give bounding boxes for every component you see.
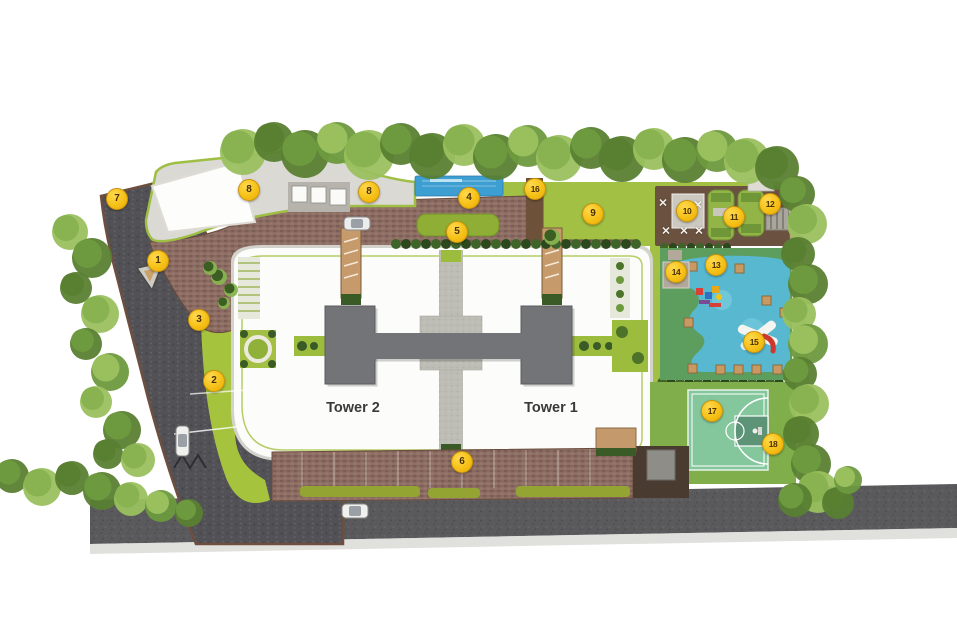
- marker-8[interactable]: 8: [238, 179, 260, 201]
- hedge-shrub: [431, 239, 441, 249]
- hedge-shrub: [631, 239, 641, 249]
- hedge-shrub: [521, 239, 531, 249]
- backboard: [758, 427, 762, 435]
- lawn-verge: [516, 486, 630, 497]
- utility-block: [633, 446, 689, 498]
- hedge-shrub: [401, 239, 411, 249]
- tree: [778, 483, 812, 517]
- tower-1-footprint: [521, 306, 572, 384]
- hedge-shrub: [601, 239, 611, 249]
- marker-3[interactable]: 3: [188, 309, 210, 331]
- hedge-shrub: [491, 239, 501, 249]
- tree: [93, 439, 123, 469]
- tower-1-label: Tower 1: [524, 400, 578, 416]
- hedge-shrub: [391, 239, 401, 249]
- marker-18[interactable]: 18: [762, 433, 784, 455]
- site-plan-canvas: ✕✕✕✕✕ Tower 2 Tower 1 123456788910111213…: [0, 0, 957, 625]
- tree: [114, 482, 148, 516]
- tower-2-label: Tower 2: [326, 400, 380, 416]
- hedge-shrub: [471, 239, 481, 249]
- x-ground-mark: ✕: [658, 197, 667, 210]
- marker-9[interactable]: 9: [582, 203, 604, 225]
- marker-17[interactable]: 17: [701, 400, 723, 422]
- hedge-shrub: [481, 239, 491, 249]
- marker-8[interactable]: 8: [358, 181, 380, 203]
- marker-2[interactable]: 2: [203, 370, 225, 392]
- car-on-driveway: [176, 426, 189, 456]
- planter-pockets-right: [610, 258, 630, 318]
- parking-stalls-left: [238, 257, 260, 319]
- tree: [81, 295, 119, 333]
- service-structure: [330, 189, 346, 205]
- planter-pocket-east: [612, 320, 648, 372]
- x-ground-mark: ✕: [661, 225, 670, 238]
- tree: [218, 297, 230, 309]
- site-plan-map: [0, 0, 957, 625]
- hedge-shrub: [621, 239, 631, 249]
- marker-14[interactable]: 14: [665, 261, 687, 283]
- lawn-verge: [428, 488, 480, 498]
- tree: [121, 443, 155, 477]
- marker-10[interactable]: 10: [676, 200, 698, 222]
- tree: [834, 466, 862, 494]
- hedge-shrub: [571, 239, 581, 249]
- car-on-road: [342, 504, 368, 518]
- tree: [175, 499, 203, 527]
- tree: [544, 229, 560, 245]
- marker-13[interactable]: 13: [705, 254, 727, 276]
- tree: [72, 238, 112, 278]
- service-structure: [311, 187, 326, 203]
- tower-2-footprint: [325, 306, 375, 384]
- tree: [70, 328, 102, 360]
- tree: [203, 261, 217, 275]
- basement-ramp-west: [341, 228, 361, 305]
- garden-circle: [240, 330, 276, 368]
- marker-11[interactable]: 11: [723, 206, 745, 228]
- tree: [788, 324, 828, 364]
- x-ground-mark: ✕: [679, 225, 688, 238]
- path-planter: [441, 250, 461, 262]
- marker-7[interactable]: 7: [106, 188, 128, 210]
- hedge-shrub: [501, 239, 511, 249]
- small-pad: [668, 250, 682, 260]
- tree: [91, 353, 129, 391]
- parked-car: [344, 217, 370, 230]
- hoop: [753, 429, 758, 434]
- podium-ramp-south: [596, 428, 636, 456]
- hedge-shrub: [511, 239, 521, 249]
- hedge-shrub: [421, 239, 431, 249]
- service-structure: [292, 186, 307, 202]
- tower-link-corridor: [373, 333, 523, 359]
- marker-12[interactable]: 12: [759, 193, 781, 215]
- marker-4[interactable]: 4: [458, 187, 480, 209]
- tree: [80, 386, 112, 418]
- marker-5[interactable]: 5: [446, 221, 468, 243]
- hedge-shrub: [561, 239, 571, 249]
- x-ground-mark: ✕: [694, 225, 703, 238]
- hedge-shrub: [611, 239, 621, 249]
- lawn-verge: [300, 486, 420, 497]
- pool-glint: [430, 179, 462, 182]
- marker-1[interactable]: 1: [147, 250, 169, 272]
- tree: [23, 468, 61, 506]
- hedge-shrub: [531, 239, 541, 249]
- hedge-shrub: [591, 239, 601, 249]
- hedge-shrub: [581, 239, 591, 249]
- marker-6[interactable]: 6: [451, 451, 473, 473]
- hedge-shrub: [411, 239, 421, 249]
- marker-16[interactable]: 16: [524, 178, 546, 200]
- marker-15[interactable]: 15: [743, 331, 765, 353]
- tree: [145, 490, 177, 522]
- tree: [224, 283, 238, 297]
